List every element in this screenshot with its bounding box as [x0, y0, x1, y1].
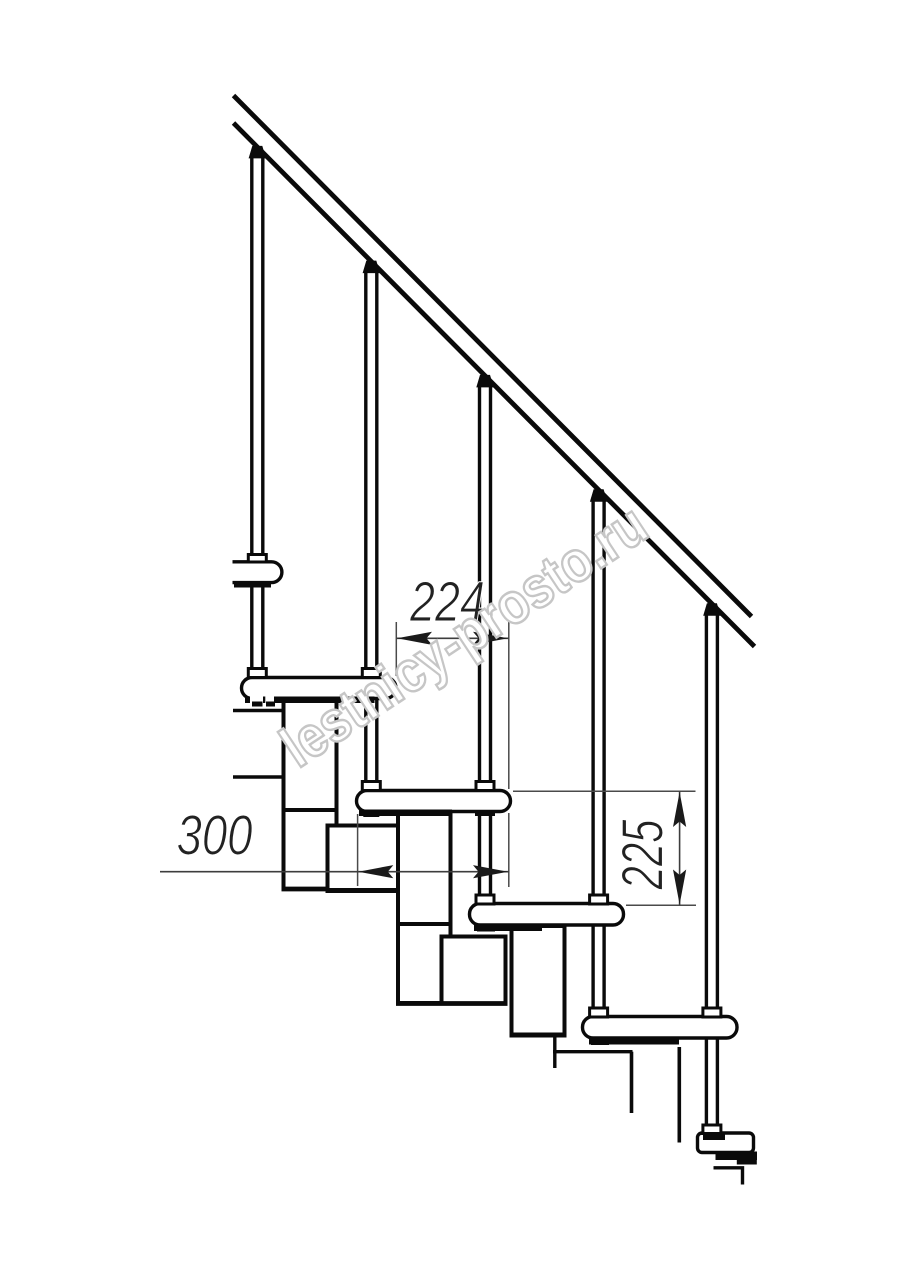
svg-text:300: 300	[177, 804, 253, 868]
svg-text:225: 225	[611, 819, 676, 890]
